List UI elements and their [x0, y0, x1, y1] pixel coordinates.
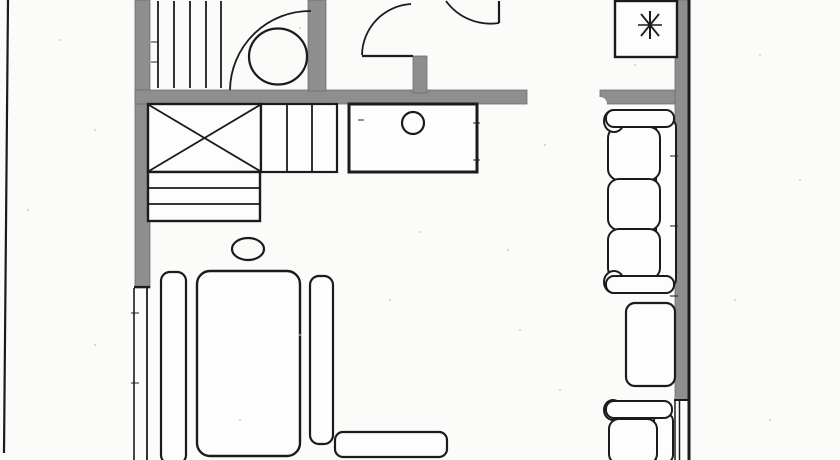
bed [197, 271, 300, 456]
side-table [626, 303, 675, 386]
page-edge-line-left [4, 0, 8, 453]
armchair-seat [609, 419, 657, 460]
scan-speckle [94, 129, 96, 131]
bathroom-fixture-circle [249, 29, 307, 85]
bed-side-rail-left [161, 272, 186, 460]
scan-speckle [759, 54, 761, 56]
sofa-arm-top [606, 110, 674, 127]
bed-side-rail-right [310, 276, 333, 444]
floor-plan-page [0, 0, 840, 460]
scan-speckle [59, 39, 61, 41]
wall-entry-stub [413, 56, 427, 93]
entry-door-arc [362, 4, 411, 55]
shelf-box [148, 172, 260, 221]
sofa-cushion-1 [608, 127, 660, 180]
scan-speckle [27, 209, 29, 211]
wall-break-notch [593, 97, 607, 111]
hall-door-arc [446, 1, 499, 24]
sofa-cushion-2 [608, 179, 660, 230]
scan-speckle [734, 299, 736, 301]
scan-speckle [419, 231, 421, 233]
armchair-arm [606, 401, 672, 418]
kitchen-counter [349, 104, 477, 172]
scan-speckle [634, 64, 636, 66]
foot-bench [335, 432, 447, 457]
floor-plan-canvas [0, 0, 840, 460]
scan-speckle [507, 249, 509, 251]
cabinet-box [261, 104, 337, 172]
scan-speckle [389, 299, 391, 301]
bathroom-door-arc [230, 11, 311, 90]
scan-speckle [299, 27, 301, 29]
scan-speckle [94, 344, 96, 346]
sofa-arm-bottom [606, 276, 674, 293]
scan-speckle [559, 389, 561, 391]
scan-speckle [544, 144, 546, 146]
scan-speckle [239, 419, 241, 421]
wall-top-main [135, 90, 527, 104]
scan-speckle [799, 179, 801, 181]
scan-speckle [769, 419, 771, 421]
scan-speckle [299, 334, 301, 336]
stool-ellipse [232, 238, 264, 260]
wall-bathroom-right [308, 0, 326, 91]
scan-speckle [519, 329, 521, 331]
